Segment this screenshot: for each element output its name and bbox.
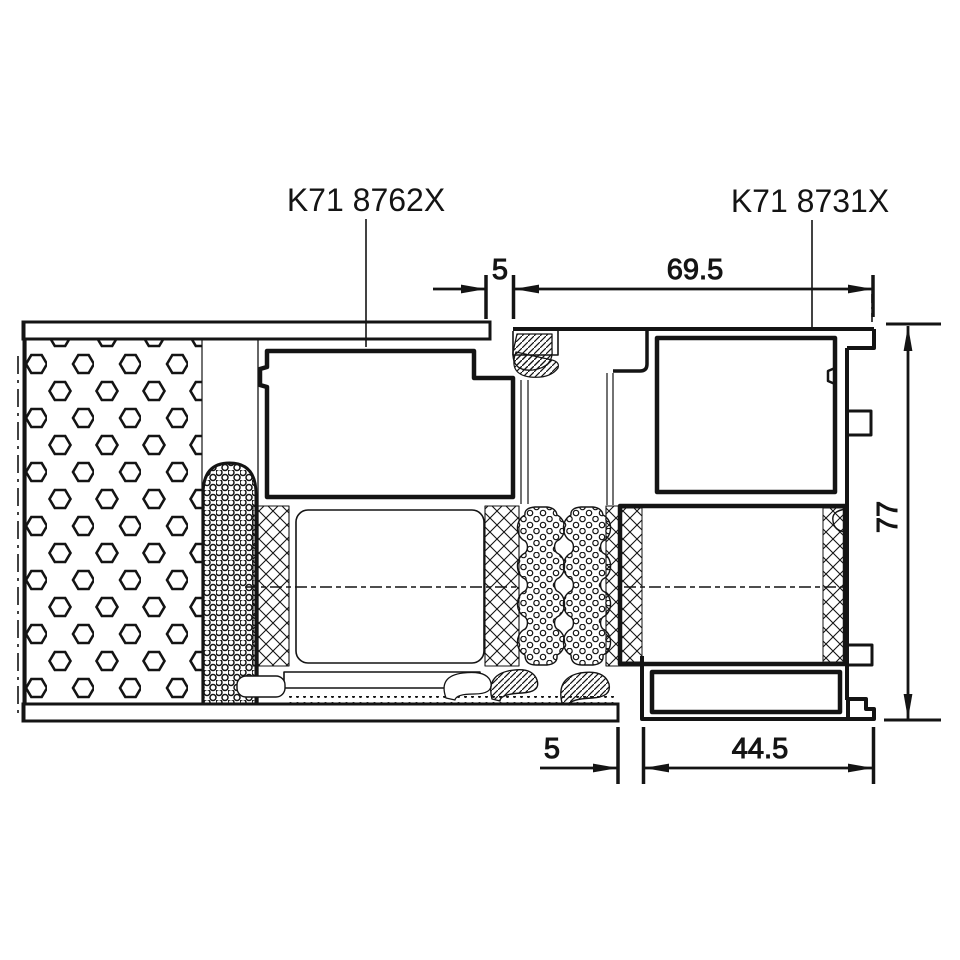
arrow-left-icon: [644, 764, 669, 773]
dim-bottom-width-value: 44.5: [732, 733, 788, 765]
thermal-strut-mid: [485, 506, 519, 666]
arrow-up-icon: [904, 326, 913, 351]
drawing-svg: 5 69.5 77 5: [0, 0, 960, 960]
thermal-strut-left: [253, 506, 289, 666]
hex-insulation-panel: [26, 339, 202, 704]
thermal-strut-sash-l: [621, 508, 642, 662]
arrow-right-icon: [593, 764, 618, 773]
part-label-left: K71 8762X: [287, 182, 445, 218]
arrow-left-icon: [514, 285, 539, 294]
sash-lower-chamber: [620, 506, 845, 664]
frame-profile-left: [237, 351, 528, 697]
dim-top-gap-value: 5: [492, 254, 508, 286]
frame-upper-chamber: [260, 351, 513, 497]
sill-gasket-lip: [444, 672, 491, 700]
dim-bottom-gap-value: 5: [544, 733, 560, 765]
sash-left-elbow: [613, 331, 647, 371]
dim-bottom-gap: 5: [540, 727, 644, 784]
sash-bottom-chamber: [652, 672, 840, 712]
wall-top-bar: [23, 322, 490, 339]
dim-height-value: 77: [872, 501, 904, 533]
arrow-right-icon: [848, 764, 873, 773]
dim-top-width: 69.5: [514, 254, 873, 317]
dim-height: 77: [872, 324, 941, 720]
dim-bottom-width: 44.5: [644, 727, 874, 784]
thermal-break-gasket-2: [563, 507, 610, 665]
sash-hook-upper: [847, 411, 871, 435]
profile-cross-section-drawing: 5 69.5 77 5: [0, 0, 960, 960]
arrow-right-icon: [848, 285, 873, 294]
wall-bottom-bar: [23, 704, 618, 721]
thermal-break-gasket-1: [517, 507, 564, 665]
foam-backer-rod: [203, 463, 256, 704]
sash-hook-lower: [847, 645, 872, 665]
sash-upper-chamber: [657, 338, 835, 492]
dim-top-gap: 5: [433, 254, 514, 319]
dim-top-width-value: 69.5: [667, 254, 723, 286]
arrow-down-icon: [904, 694, 913, 719]
sash-right-lip: [847, 329, 874, 348]
arrow-right-icon: [461, 285, 486, 294]
part-label-right: K71 8731X: [731, 183, 889, 219]
frame-foot: [237, 676, 285, 697]
